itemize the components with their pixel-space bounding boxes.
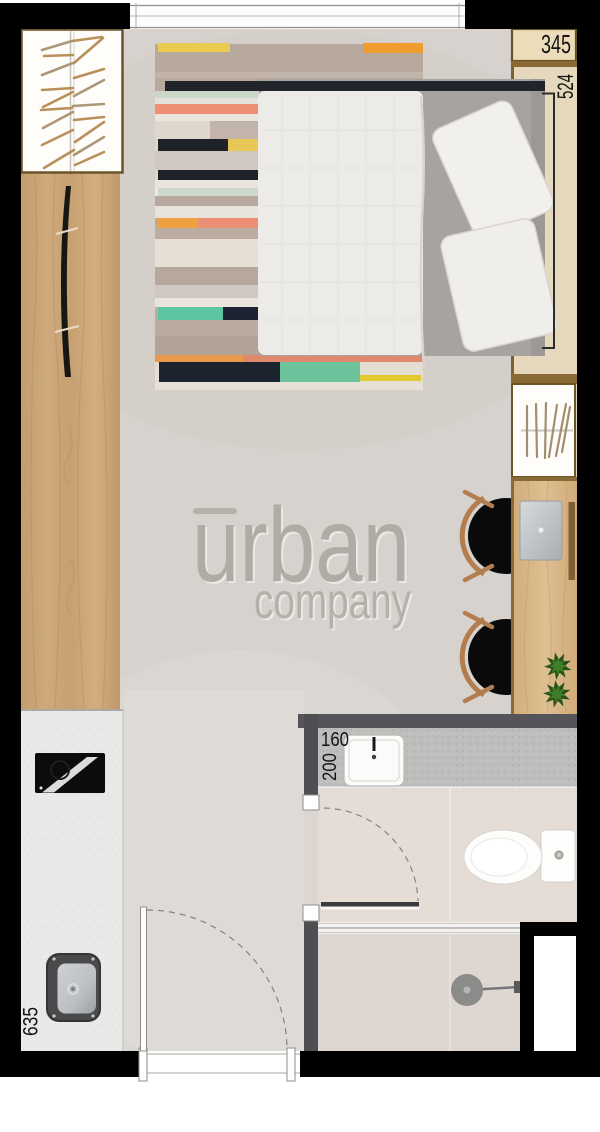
svg-text:160: 160 xyxy=(321,729,349,751)
svg-text:345: 345 xyxy=(541,29,571,59)
svg-text:200: 200 xyxy=(319,753,341,781)
svg-text:524: 524 xyxy=(553,74,578,99)
svg-text:company: company xyxy=(254,573,411,629)
svg-text:635: 635 xyxy=(20,1007,43,1036)
